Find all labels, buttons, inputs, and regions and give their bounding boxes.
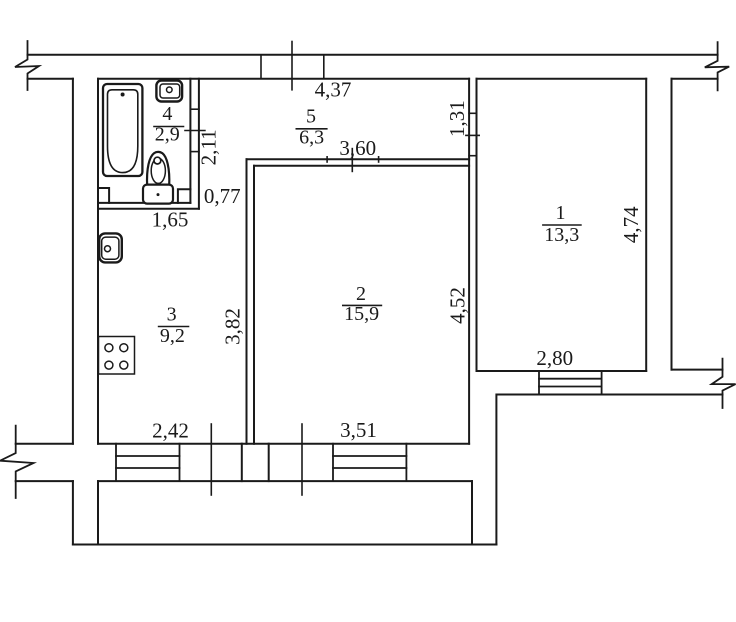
svg-text:3,51: 3,51 <box>340 418 377 442</box>
svg-text:3: 3 <box>167 304 177 326</box>
svg-text:5: 5 <box>306 106 316 128</box>
svg-text:4: 4 <box>162 103 172 125</box>
svg-text:13,3: 13,3 <box>544 224 579 246</box>
svg-text:1: 1 <box>556 202 566 224</box>
svg-text:3,60: 3,60 <box>339 136 376 160</box>
svg-text:2,80: 2,80 <box>536 346 573 370</box>
svg-text:2,9: 2,9 <box>155 124 180 146</box>
svg-text:4,74: 4,74 <box>619 206 643 243</box>
svg-text:2: 2 <box>356 283 366 305</box>
svg-text:1,31: 1,31 <box>445 100 469 137</box>
svg-text:1,65: 1,65 <box>152 207 189 231</box>
svg-text:2,42: 2,42 <box>152 419 189 443</box>
svg-text:4,52: 4,52 <box>445 287 469 324</box>
svg-text:0,77: 0,77 <box>204 184 241 208</box>
svg-text:9,2: 9,2 <box>160 325 185 347</box>
svg-text:15,9: 15,9 <box>344 303 379 325</box>
svg-text:4,37: 4,37 <box>315 78 352 102</box>
svg-text:6,3: 6,3 <box>299 127 324 149</box>
svg-text:2,11: 2,11 <box>197 129 221 165</box>
svg-text:3,82: 3,82 <box>221 308 245 345</box>
